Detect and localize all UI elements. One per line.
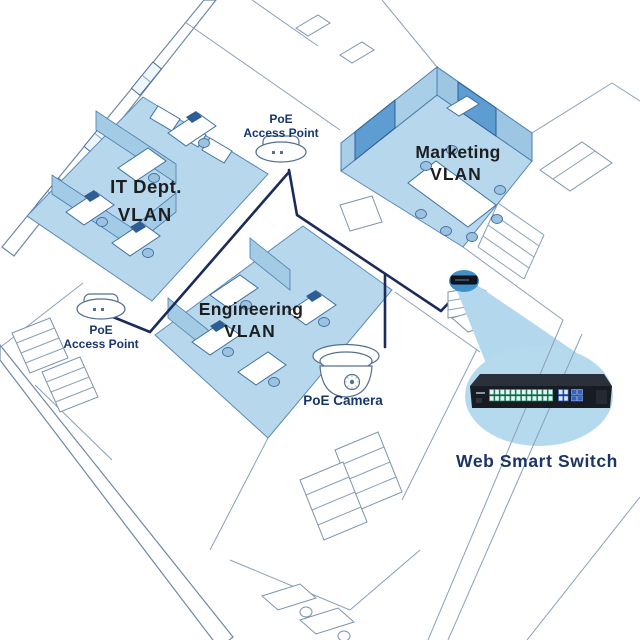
rj45-port	[500, 390, 504, 395]
vlan-it-label-line2: VLAN	[118, 204, 172, 225]
rj45-port	[506, 390, 510, 395]
web-smart-switch-label: Web Smart Switch	[456, 451, 618, 471]
sfp-slot	[578, 390, 583, 395]
switch-led-panel	[476, 398, 482, 403]
poe-camera-device	[313, 345, 379, 398]
rj45-port	[538, 396, 542, 401]
rj45-port	[511, 396, 515, 401]
rj45-port	[522, 396, 526, 401]
poe-camera-label: PoE Camera	[303, 393, 383, 408]
sfp-slot	[578, 396, 583, 401]
rj45-port	[516, 396, 520, 401]
rj45-port	[500, 396, 504, 401]
vlan-marketing-label-line1: Marketing	[415, 142, 500, 162]
wall-switch-ports	[455, 279, 469, 281]
rj45-port	[495, 396, 499, 401]
rj45-port	[516, 390, 520, 395]
uplink-port	[559, 390, 563, 395]
wall-switch-device	[449, 270, 479, 292]
rj45-port	[548, 396, 552, 401]
uplink-port	[564, 396, 568, 401]
vlan-it-label-line1: IT Dept.	[110, 176, 182, 197]
rj45-port	[495, 390, 499, 395]
network-vlan-floorplan-diagram: IT Dept. VLAN Marketing VLAN Engineering…	[0, 0, 640, 640]
rj45-port	[543, 390, 547, 395]
sfp-slot	[572, 396, 577, 401]
rj45-port	[527, 396, 531, 401]
ap-top-label-line2: Access Point	[243, 126, 318, 140]
poe-access-point-left-device	[77, 294, 125, 319]
rj45-port	[490, 390, 494, 395]
uplink-port	[564, 390, 568, 395]
uplink-port	[559, 396, 563, 401]
switch-right-panel	[596, 390, 607, 404]
rj45-port	[527, 390, 531, 395]
outer-wall-southwest	[0, 345, 233, 640]
ap-top-label-line1: PoE	[269, 112, 292, 126]
rj45-port	[506, 396, 510, 401]
vlan-marketing-label-line2: VLAN	[430, 164, 482, 184]
switch-logo	[476, 392, 485, 394]
rj45-port	[532, 390, 536, 395]
rj45-port	[543, 396, 547, 401]
ap-left-label-line2: Access Point	[63, 337, 138, 351]
ap-left-label-line1: PoE	[89, 323, 112, 337]
web-smart-switch-device	[470, 374, 612, 408]
rj45-port	[511, 390, 515, 395]
rj45-port	[538, 390, 542, 395]
vlan-engineering-label-line1: Engineering	[199, 299, 303, 319]
rj45-port	[490, 396, 494, 401]
rj45-port	[522, 390, 526, 395]
rj45-port	[532, 396, 536, 401]
vlan-engineering-label-line2: VLAN	[224, 321, 276, 341]
switch-top-face	[470, 374, 612, 386]
sfp-slot	[572, 390, 577, 395]
rj45-port	[548, 390, 552, 395]
vlan-it-region	[27, 97, 268, 301]
floorplan-svg: IT Dept. VLAN Marketing VLAN Engineering…	[0, 0, 640, 640]
